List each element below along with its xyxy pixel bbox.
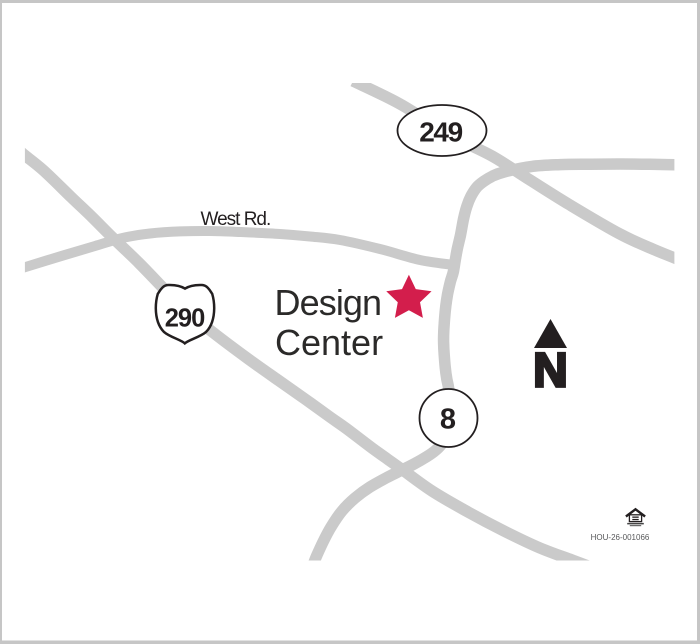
svg-text:West Rd.: West Rd. (201, 209, 271, 230)
svg-text:Design: Design (275, 282, 382, 323)
svg-text:Center: Center (275, 322, 383, 363)
svg-text:N: N (533, 345, 568, 398)
svg-text:HOU-26-001066: HOU-26-001066 (591, 533, 650, 542)
svg-text:249: 249 (419, 116, 462, 147)
svg-text:290: 290 (165, 305, 205, 333)
svg-text:8: 8 (440, 403, 456, 435)
